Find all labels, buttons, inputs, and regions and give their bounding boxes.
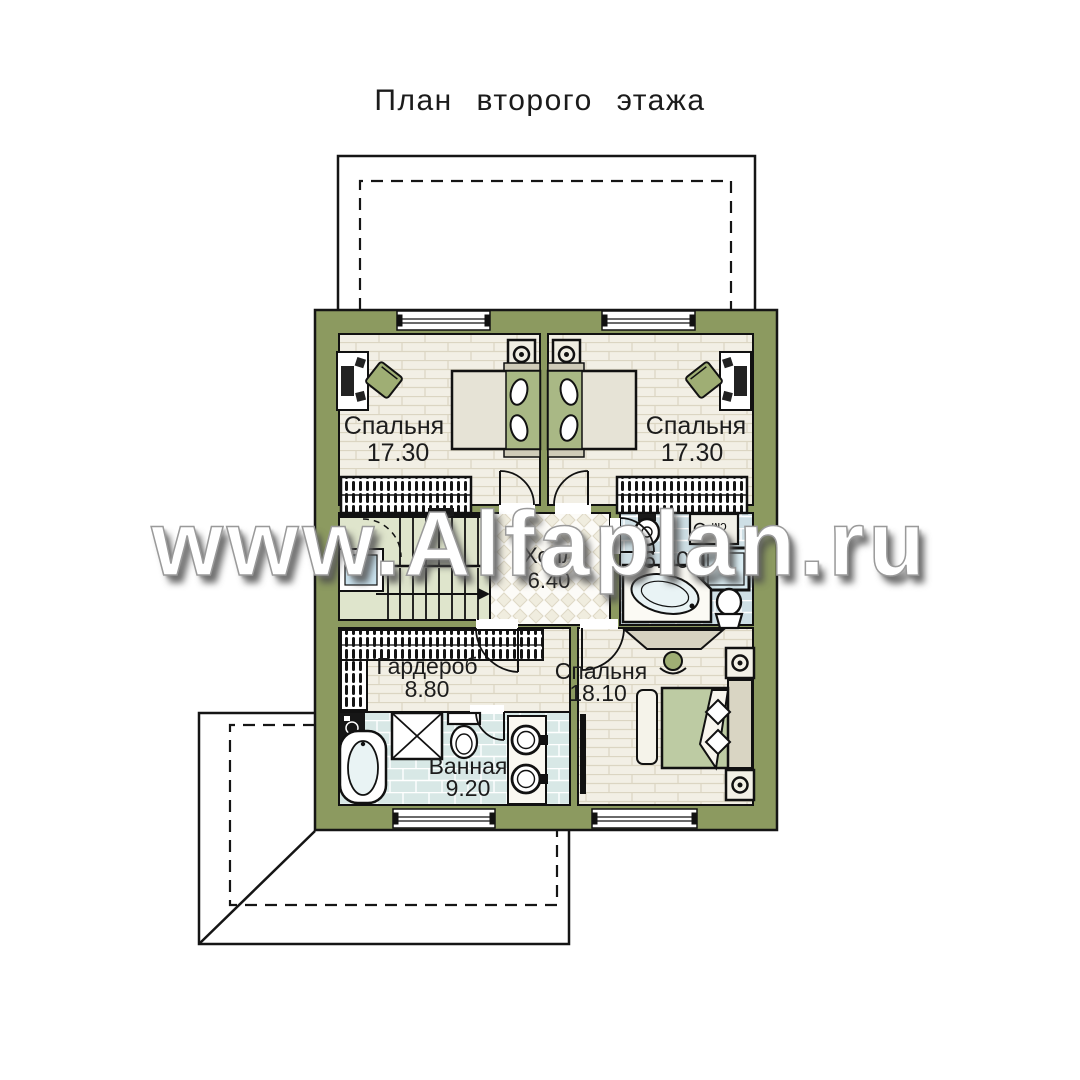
bathtub-symbol <box>340 731 386 803</box>
room-area-bedroom-bottom: 18.10 <box>569 680 627 706</box>
window-symbol <box>602 311 695 330</box>
room-label-hall: Холл <box>523 543 575 568</box>
floor-plan-page: План второго этажа <box>0 0 1080 1080</box>
window-symbol <box>592 809 697 828</box>
window-symbol <box>393 809 495 828</box>
room-label-bedroom-top-right: Спальня <box>646 412 746 440</box>
room-area-bathroom-main: 9.20 <box>446 775 491 801</box>
bed-symbol <box>662 680 752 768</box>
room-area-wardrobe: 8.80 <box>405 676 450 702</box>
washing-machine-label: см <box>711 520 727 535</box>
toilet-symbol <box>716 589 742 628</box>
room-area-hall: 6.40 <box>528 568 571 593</box>
shower-symbol <box>703 548 749 590</box>
sink-symbol <box>635 514 659 545</box>
room-label-bedroom-top-left: Спальня <box>344 412 444 440</box>
room-area-bedroom-top-right: 17.30 <box>661 439 724 467</box>
washing-machine-symbol: см <box>690 514 738 544</box>
roof-outline-top <box>338 156 755 312</box>
tv-symbol <box>580 714 586 794</box>
nightstand-symbol <box>726 770 754 800</box>
nightstand-symbol <box>726 648 754 678</box>
window-symbol <box>397 311 490 330</box>
vanity-sinks-symbol <box>508 716 548 804</box>
toilet-symbol <box>448 713 480 758</box>
bench-symbol <box>637 690 657 764</box>
room-area-bathroom-small: 6.60 <box>643 547 690 574</box>
room-area-bedroom-top-left: 17.30 <box>367 439 430 467</box>
floor-plan: см <box>0 0 1080 1080</box>
page-title: План второго этажа <box>0 84 1080 118</box>
stair-window-symbol <box>339 549 383 591</box>
